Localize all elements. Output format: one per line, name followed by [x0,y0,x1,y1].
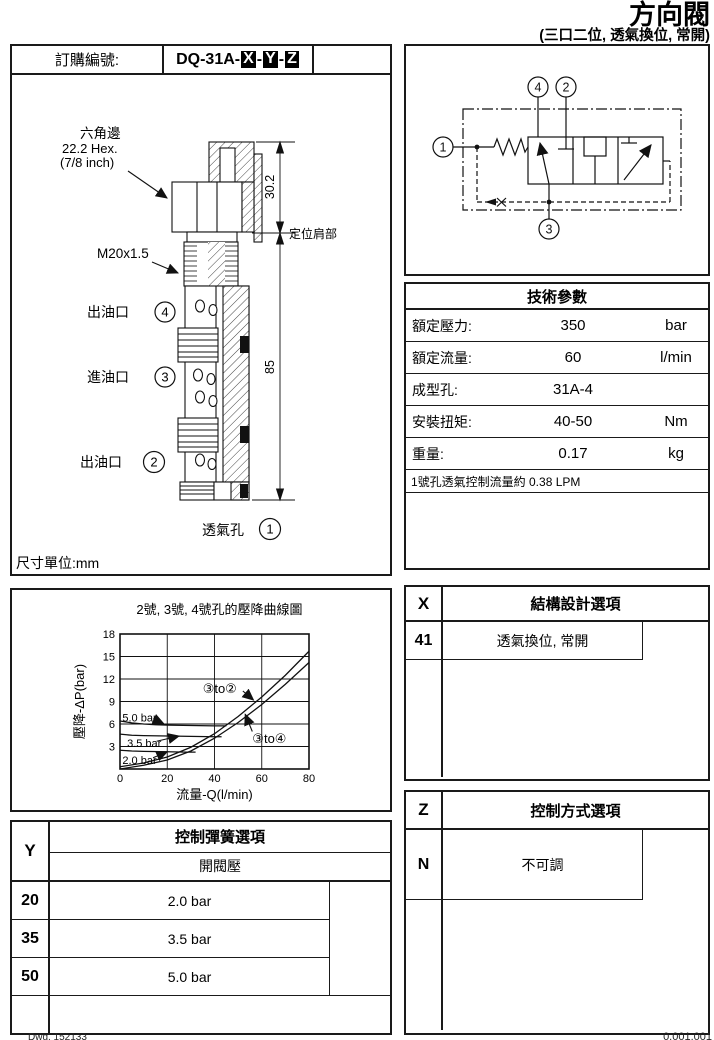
port4-label: 出油口 [87,304,129,320]
z-table-key: Z [406,792,443,828]
schematic-port-3: 3 [546,223,553,237]
param-unit: bar [644,317,708,334]
footer-drawing-number: Dwg. 152133 [28,1032,87,1040]
hex-label-cn: 六角邊 [80,126,121,141]
page-header: 方向閥 (三口二位, 透氣換位, 常開) [539,1,710,45]
table-row: N 不可調 [406,830,708,900]
x-table-title: 結構設計選項 [443,587,708,620]
x-table-key: X [406,587,443,620]
valve-cross-section-drawing: 30.2 85 定位肩部 六角邊 22.2 Hex. (7/8 inch) M2… [12,75,390,557]
param-unit: kg [644,445,708,462]
option-desc: 2.0 bar [50,882,330,920]
order-number-code: DQ-31A-X-Y-Z [164,46,314,73]
x-tick-label: 0 [117,773,123,785]
chart-ylabel: 壓降-ΔP(bar) [72,664,87,739]
y-tick-label: 15 [103,652,115,664]
page-title: 方向閥 [539,1,710,29]
port4-number: 4 [161,305,168,320]
table-row: 20 2.0 bar [12,882,390,920]
param-value: 0.17 [502,445,644,462]
chart-annotation: 5.0 bar [122,712,157,724]
order-code-x: X [241,51,256,68]
y-tick-label: 3 [109,742,115,754]
schematic-port-4: 4 [535,81,542,95]
empty-area [406,900,708,1030]
schematic-envelope [463,109,681,210]
chart-annotation: ③to④ [252,731,286,746]
hex-label-inch: (7/8 inch) [60,155,114,170]
y-option-table: Y 控制彈簧選項 開閥壓 20 2.0 bar 35 3.5 bar 50 5.… [10,820,392,1035]
dim-85: 85 [263,360,277,374]
x-tick-label: 20 [161,773,173,785]
param-label: 額定流量: [406,348,502,368]
port1-number: 1 [266,522,273,537]
datasheet-page: 方向閥 (三口二位, 透氣換位, 常開) 訂購編號: DQ-31A-X-Y-Z [0,0,714,1040]
y-tick-label: 6 [109,719,115,731]
order-code-prefix: DQ-31A- [176,51,240,69]
annotation-arrow [243,691,254,700]
hydraulic-schematic: 1 4 2 3 [406,46,708,274]
y-table-key: Y [12,822,50,880]
hex-label-size: 22.2 Hex. [62,141,118,156]
option-code: 35 [12,920,50,958]
schematic-port-1: 1 [440,141,447,155]
schematic-panel: 1 4 2 3 [404,44,710,276]
dimension-unit-note: 尺寸單位:mm [16,553,99,573]
pressure-drop-chart: 0204060803691215185.0 bar3.5 bar2.0 bar③… [12,590,390,810]
order-number-label: 訂購編號: [12,46,164,73]
table-row: 重量: 0.17 kg [406,438,708,470]
empty-area [406,660,708,777]
dim-30-2: 30.2 [263,175,277,199]
param-value: 60 [502,349,644,366]
thread-leader-arrow [152,262,178,273]
x-tick-label: 40 [208,773,220,785]
param-label: 安裝扭矩: [406,412,502,432]
valve-body-geometry [172,142,262,500]
option-desc: 3.5 bar [50,920,330,958]
param-label: 重量: [406,444,502,464]
order-code-dash2: - [279,51,284,69]
chart-annotation: 2.0 bar [122,755,157,767]
order-number-row: 訂購編號: DQ-31A-X-Y-Z [12,46,390,75]
order-number-empty-cell [314,46,390,73]
y-table-subtitle: 開閥壓 [50,853,390,880]
port2-label: 出油口 [80,454,122,470]
footer-doc-number: 0.001.001 [663,1031,712,1040]
table-row: 成型孔: 31A-4 [406,374,708,406]
hex-leader-arrow [128,171,167,198]
port3-label: 進油口 [87,369,129,385]
y-tick-label: 12 [103,674,115,686]
schematic-junctions [475,145,552,206]
option-desc: 透氣換位, 常開 [443,622,643,660]
order-code-y: Y [263,51,278,68]
param-value: 40-50 [502,413,644,430]
thread-label: M20x1.5 [97,246,149,261]
empty-area [12,996,390,1033]
table-row: 額定流量: 60 l/min [406,342,708,374]
param-value: 31A-4 [502,381,644,398]
option-spare-cell [330,882,390,920]
param-value: 350 [502,317,644,334]
x-option-table: X 結構設計選項 41 透氣換位, 常開 [404,585,710,781]
y-tick-label: 18 [103,629,115,641]
page-subtitle: (三口二位, 透氣換位, 常開) [539,29,710,44]
table-row: 50 5.0 bar [12,958,390,996]
option-spare-cell [330,958,390,996]
series-3.5 bar [120,734,222,737]
tech-params-title: 技術參數 [406,284,708,310]
port2-number: 2 [150,455,157,470]
order-code-dash1: - [257,51,262,69]
param-label: 額定壓力: [406,316,502,336]
port3-number: 3 [161,370,168,385]
option-code: 20 [12,882,50,920]
tech-params-note: 1號孔透氣控制流量約 0.38 LPM [406,470,708,493]
table-row: 額定壓力: 350 bar [406,310,708,342]
y-table-title: 控制彈簧選項 [50,822,390,853]
param-unit: Nm [644,413,708,430]
schematic-port-2: 2 [563,81,570,95]
x-tick-label: 80 [303,773,315,785]
port1-label: 透氣孔 [202,522,244,538]
z-option-table: Z 控制方式選項 N 不可調 [404,790,710,1035]
chart-xlabel: 流量-Q(l/min) [176,787,253,802]
option-spare-cell [643,622,708,660]
drawing-panel: 訂購編號: DQ-31A-X-Y-Z [10,44,392,576]
chart-annotation: ③to② [203,681,237,696]
table-row: 41 透氣換位, 常開 [406,622,708,660]
option-desc: 5.0 bar [50,958,330,996]
option-code: 50 [12,958,50,996]
option-spare-cell [643,830,708,900]
chart-panel: 0204060803691215185.0 bar3.5 bar2.0 bar③… [10,588,392,812]
table-row: 安裝扭矩: 40-50 Nm [406,406,708,438]
param-unit: l/min [644,349,708,366]
y-tick-label: 9 [109,697,115,709]
shoulder-label: 定位肩部 [289,226,337,241]
z-table-title: 控制方式選項 [443,792,708,828]
table-row: 35 3.5 bar [12,920,390,958]
option-code: 41 [406,622,443,660]
option-spare-cell [330,920,390,958]
option-code: N [406,830,443,900]
tech-params-table: 技術參數 額定壓力: 350 bar 額定流量: 60 l/min 成型孔: 3… [404,282,710,570]
chart-annotation: 3.5 bar [127,738,162,750]
x-tick-label: 60 [256,773,268,785]
option-desc: 不可調 [443,830,643,900]
spring-symbol [494,139,528,155]
annotation-arrow [245,714,252,731]
param-label: 成型孔: [406,380,502,400]
chart-title: 2號, 3號, 4號孔的壓降曲線圖 [136,602,302,617]
order-code-z: Z [285,51,299,68]
